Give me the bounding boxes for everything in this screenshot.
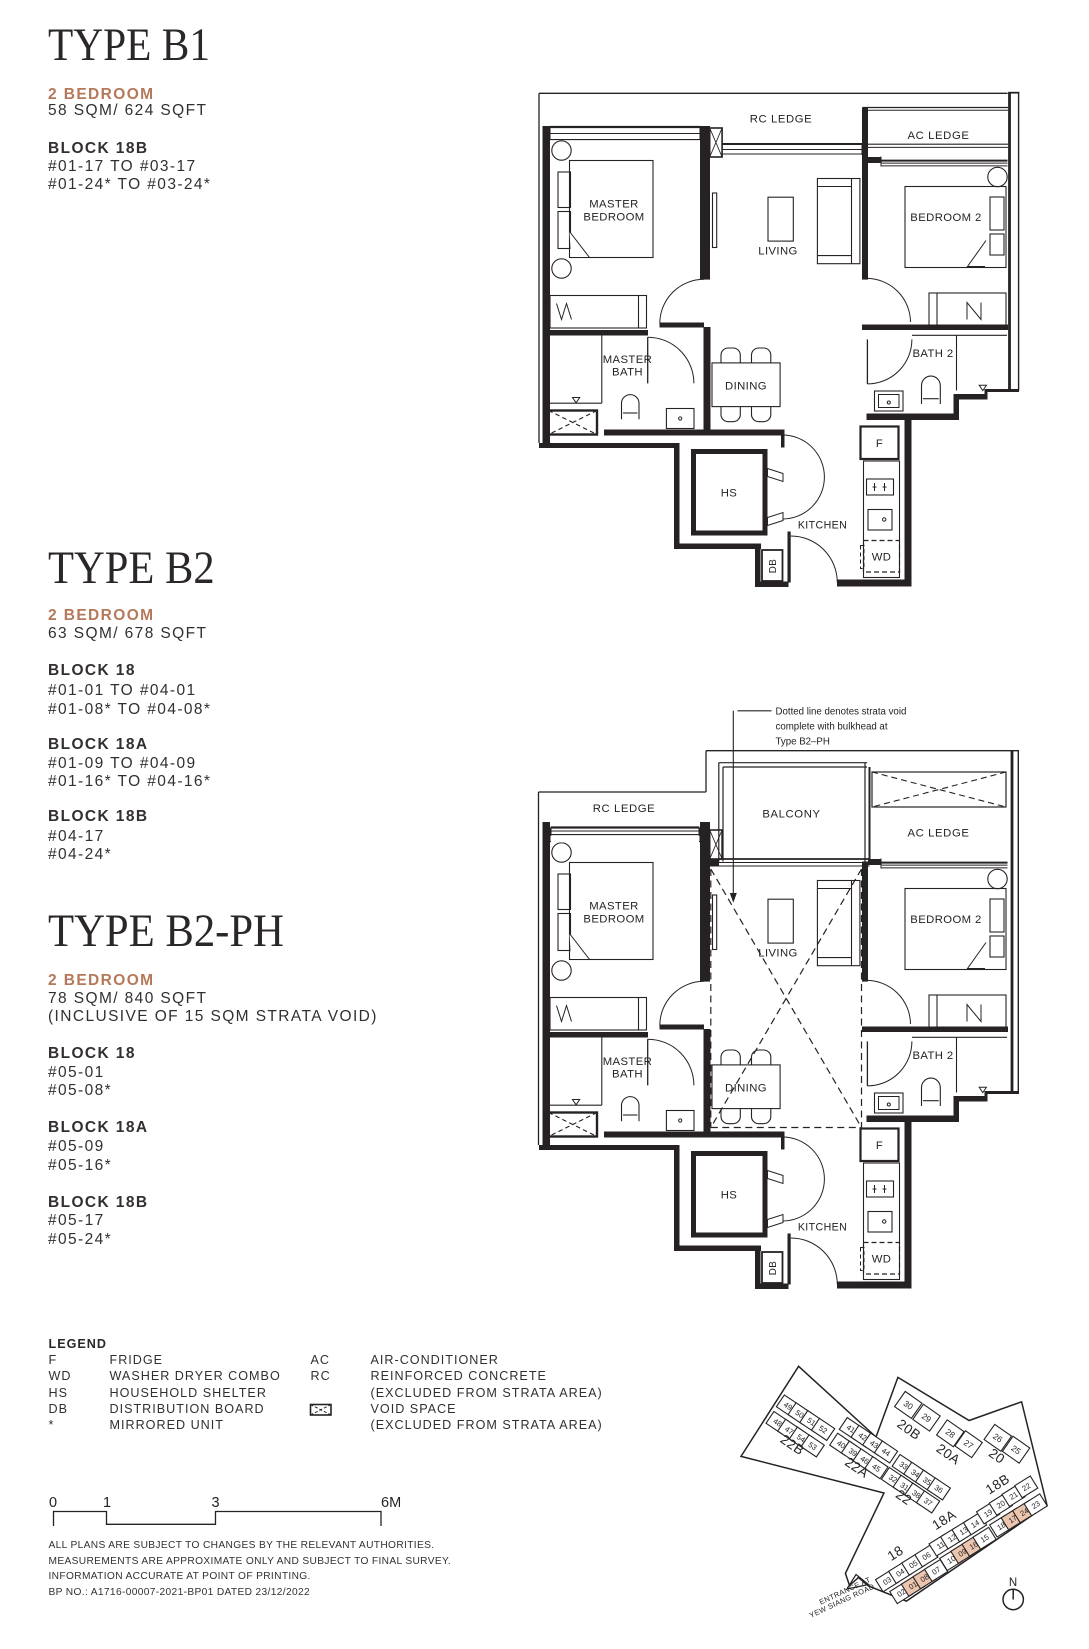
- svg-text:F: F: [876, 438, 883, 450]
- svg-text:LIVING: LIVING: [758, 246, 797, 258]
- svg-text:KITCHEN: KITCHEN: [798, 520, 847, 532]
- svg-text:WD: WD: [872, 552, 892, 564]
- svg-text:BATH 2: BATH 2: [912, 348, 953, 360]
- svg-text:Dotted line denotes strata voi: Dotted line denotes strata void: [776, 707, 907, 718]
- svg-text:RC LEDGE: RC LEDGE: [593, 803, 656, 815]
- svg-text:1: 1: [103, 1495, 111, 1511]
- svg-text:6M: 6M: [381, 1495, 401, 1511]
- svg-text:BEDROOM: BEDROOM: [583, 212, 644, 224]
- svg-text:BALCONY: BALCONY: [762, 809, 820, 821]
- svg-text:0: 0: [49, 1495, 57, 1511]
- svg-text:BATH: BATH: [612, 367, 643, 379]
- svg-text:HS: HS: [721, 488, 738, 500]
- svg-text:DINING: DINING: [725, 381, 767, 393]
- svg-text:MASTER: MASTER: [589, 199, 638, 211]
- svg-text:Type B2–PH: Type B2–PH: [776, 736, 830, 747]
- svg-text:RC LEDGE: RC LEDGE: [750, 114, 813, 126]
- svg-text:complete with bulkhead at: complete with bulkhead at: [776, 722, 888, 733]
- svg-text:MASTER: MASTER: [603, 354, 652, 366]
- svg-text:18: 18: [885, 1543, 906, 1564]
- svg-text:BEDROOM 2: BEDROOM 2: [910, 212, 981, 224]
- svg-text:AC LEDGE: AC LEDGE: [908, 828, 970, 840]
- svg-text:DB: DB: [768, 559, 779, 573]
- svg-text:AC LEDGE: AC LEDGE: [908, 130, 970, 142]
- svg-text:N: N: [1009, 1577, 1018, 1589]
- svg-text:3: 3: [211, 1495, 219, 1511]
